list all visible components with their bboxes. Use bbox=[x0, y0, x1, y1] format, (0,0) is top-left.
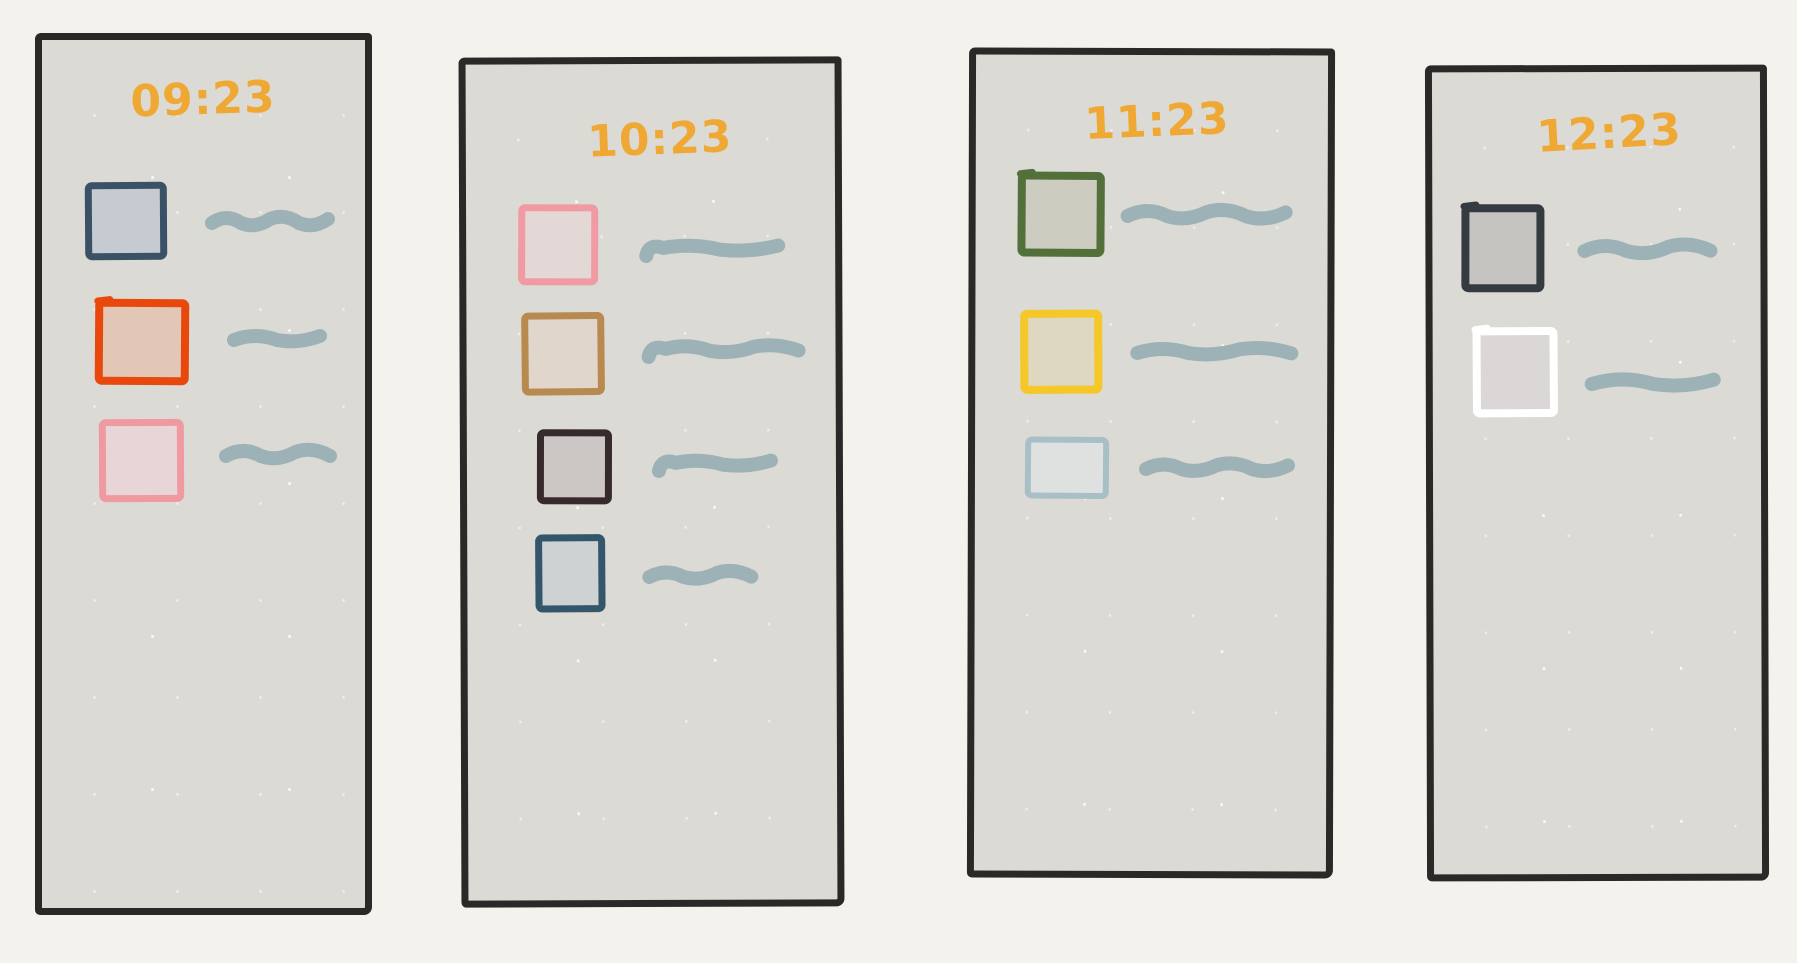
task-checkbox[interactable] bbox=[1020, 310, 1102, 394]
schedule-panel: 10:23 bbox=[459, 56, 845, 907]
task-checkbox[interactable] bbox=[518, 204, 598, 285]
task-row bbox=[466, 63, 838, 900]
time-label: 11:23 bbox=[1071, 97, 1243, 148]
task-row bbox=[466, 63, 838, 900]
task-checkbox[interactable] bbox=[95, 299, 190, 386]
time-label: 10:23 bbox=[574, 115, 746, 165]
task-text-squiggle bbox=[227, 322, 327, 354]
task-text-squiggle bbox=[639, 232, 785, 265]
task-row bbox=[42, 40, 365, 908]
pen-overshoot-mark bbox=[1471, 324, 1491, 333]
task-text-squiggle bbox=[1585, 366, 1721, 398]
task-row bbox=[42, 40, 365, 908]
task-row bbox=[42, 40, 365, 908]
time-label: 09:23 bbox=[117, 75, 288, 125]
task-checkbox[interactable] bbox=[1461, 204, 1544, 292]
time-label: 12:23 bbox=[1523, 107, 1695, 160]
schedule-panel: 11:23 bbox=[967, 48, 1335, 879]
pen-overshoot-mark bbox=[94, 296, 114, 305]
task-checkbox[interactable] bbox=[537, 429, 612, 504]
task-checkbox[interactable] bbox=[535, 534, 606, 612]
task-text-squiggle bbox=[1130, 335, 1298, 367]
pen-overshoot-mark bbox=[1017, 168, 1037, 177]
pen-overshoot-mark bbox=[1460, 201, 1480, 210]
sketch-canvas: 09:23 10:23 bbox=[0, 0, 1797, 963]
task-text-squiggle bbox=[641, 332, 805, 365]
task-row bbox=[1432, 72, 1762, 875]
task-text-squiggle bbox=[205, 205, 335, 237]
task-text-squiggle bbox=[642, 559, 758, 591]
task-checkbox[interactable] bbox=[1025, 436, 1109, 499]
task-checkbox[interactable] bbox=[521, 312, 605, 396]
task-text-squiggle bbox=[1139, 451, 1295, 483]
task-checkbox[interactable] bbox=[99, 419, 184, 502]
task-text-squiggle bbox=[1121, 198, 1293, 230]
task-row bbox=[466, 63, 838, 900]
task-checkbox[interactable] bbox=[85, 182, 168, 261]
task-checkbox[interactable] bbox=[1017, 171, 1105, 257]
task-text-squiggle bbox=[1577, 233, 1717, 265]
schedule-panel: 09:23 bbox=[35, 33, 372, 915]
task-text-squiggle bbox=[219, 438, 337, 470]
task-checkbox[interactable] bbox=[1472, 327, 1558, 418]
schedule-panel: 12:23 bbox=[1425, 65, 1769, 882]
task-text-squiggle bbox=[652, 447, 778, 479]
task-row bbox=[1432, 72, 1762, 875]
task-row bbox=[466, 63, 838, 900]
